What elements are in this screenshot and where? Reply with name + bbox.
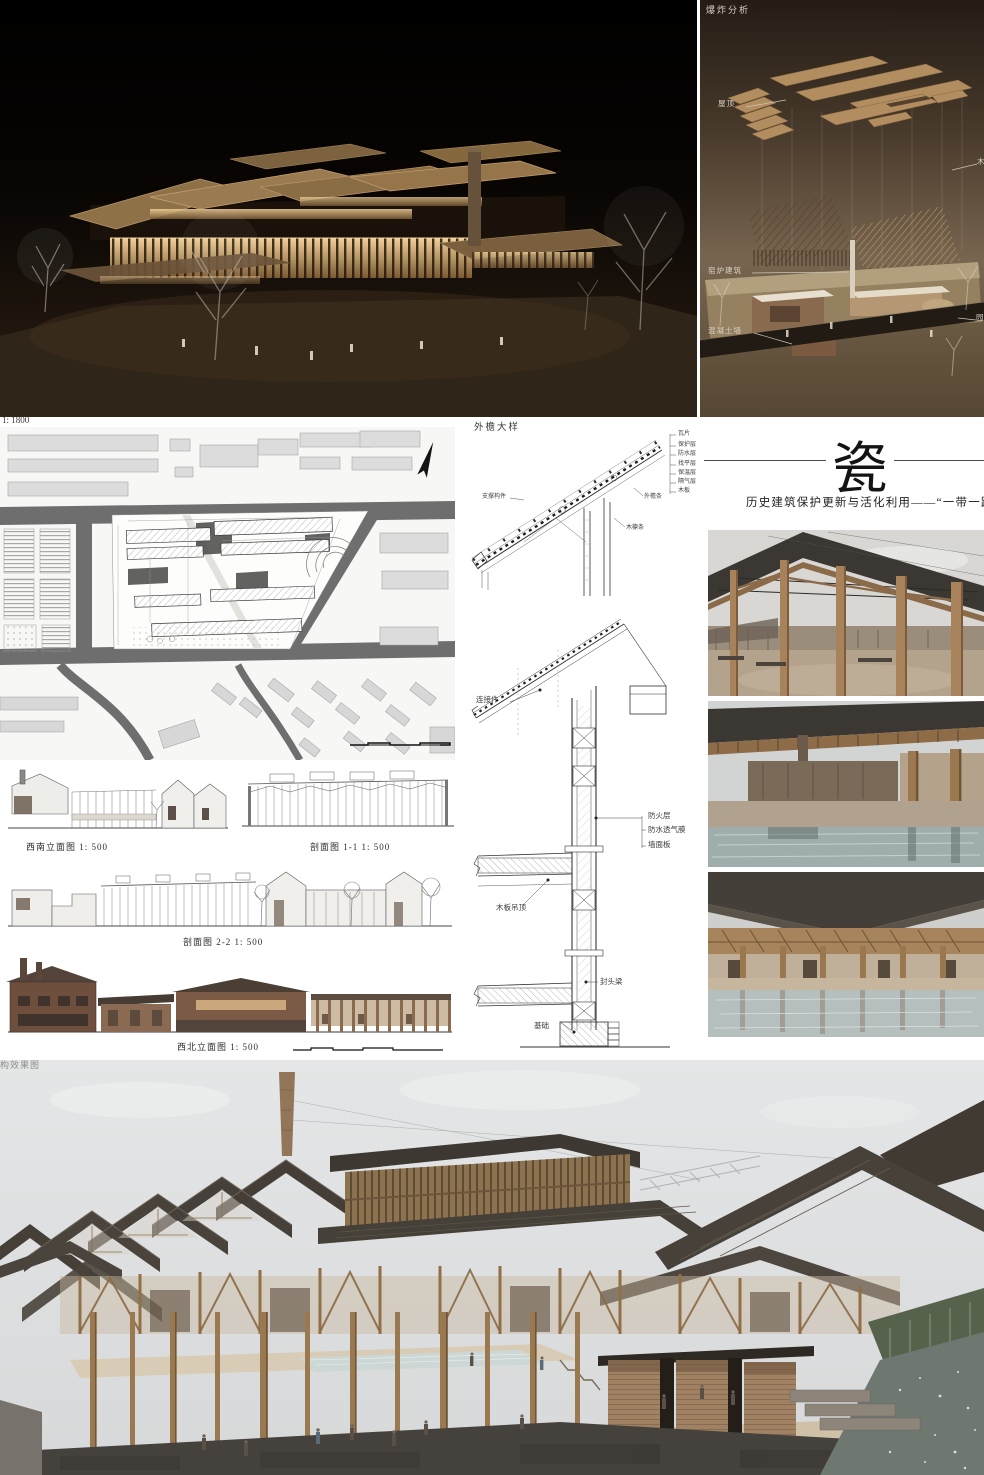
sw-elevation-title: 西南立面图 1: 500: [26, 843, 108, 853]
section-2-2-drawing: [6, 856, 454, 934]
garden-label: 园: [976, 314, 984, 322]
layer-label-tile: 瓦片: [678, 431, 690, 438]
render-thumb-exterior-pool: [708, 701, 984, 867]
presentation-board: { "board": { "title_char": "瓷", "subtitl…: [0, 0, 984, 1475]
section-1-1-drawing: [240, 766, 456, 836]
night-render-panel: [0, 0, 697, 417]
render-colonnade-image: [708, 530, 984, 696]
timber-label: 木: [977, 158, 984, 166]
layer-label-board: 木板: [678, 488, 690, 495]
wall-section-drawing: [462, 598, 697, 1050]
nw-elevation-drawing: [6, 952, 454, 1040]
layer-label-protect: 保护层: [678, 442, 696, 449]
eave-detail-title: 外檐大样: [474, 423, 520, 433]
render-court-image: [708, 872, 984, 1037]
exploded-axon-image: [700, 0, 984, 417]
layer-label-leveling: 找平层: [678, 461, 696, 468]
title-block: 瓷 历史建筑保护更新与活化利用——“一带一路”博物: [700, 428, 984, 524]
exploded-axon-title: 爆炸分析: [706, 6, 750, 16]
porcelain-title: 瓷: [828, 424, 892, 505]
connector-label: 连接件: [476, 696, 499, 704]
head-beam-label: 封头梁: [600, 978, 623, 986]
sw-elevation-drawing: [6, 766, 230, 836]
section-2-2-title: 剖面图 2-2 1: 500: [183, 938, 263, 948]
kiln-building-label: 窑炉建筑: [708, 267, 742, 275]
project-subtitle: 历史建筑保护更新与活化利用——“一带一路”博物: [746, 494, 984, 510]
eave-batten-label: 外檐条: [644, 494, 662, 501]
nw-scale-bar: [293, 1044, 445, 1054]
layer-label-waterproof: 防水层: [678, 451, 696, 458]
render-exterior-image: [708, 701, 984, 867]
support-label: 支撑构件: [482, 494, 506, 501]
roof-label: 屋顶: [718, 100, 735, 108]
site-plan-image: [0, 427, 455, 760]
eave-detail-drawing: [466, 420, 697, 598]
night-render-image: [0, 0, 697, 417]
fire-layer-label: 防火层: [648, 812, 671, 820]
purlin-label: 木檩条: [626, 525, 644, 532]
title-rule-right: [894, 460, 984, 461]
membrane-label: 防水透气膜: [648, 826, 686, 834]
title-rule-left: [704, 460, 826, 461]
wood-ceiling-label: 木板吊顶: [496, 904, 526, 912]
render-thumb-colonnade: [708, 530, 984, 696]
site-plan-scale-label: 1: 1800: [2, 416, 29, 426]
section-1-1-title: 剖面图 1-1 1: 500: [310, 843, 390, 853]
wall-panel-label: 墙面板: [648, 841, 671, 849]
concrete-wall-label: 混凝土墙: [708, 327, 742, 335]
layer-label-insulation: 保温层: [678, 470, 696, 477]
site-plan-panel: [0, 427, 455, 760]
eave-detail-panel: 外檐大样 瓦片 保护层 防水层 找平层 保温层 隔气层 木板 支撑构件 外檐条 …: [466, 420, 697, 598]
sectional-perspective-image: [0, 1060, 984, 1475]
bottom-render-label: 结构效果图: [0, 1061, 40, 1071]
sectional-perspective-render: [0, 1060, 984, 1475]
render-thumb-court-pool: [708, 872, 984, 1037]
foundation-label: 基础: [534, 1022, 549, 1030]
wall-section-panel: 连接件 防火层 防水透气膜 墙面板 木板吊顶 封头梁 基础: [462, 598, 697, 1050]
layer-label-vapor: 隔气层: [678, 479, 696, 486]
exploded-axon-panel: 爆炸分析 屋顶 木 窑炉建筑 混凝土墙 园: [700, 0, 984, 417]
nw-elevation-title: 西北立面图 1: 500: [177, 1043, 259, 1053]
